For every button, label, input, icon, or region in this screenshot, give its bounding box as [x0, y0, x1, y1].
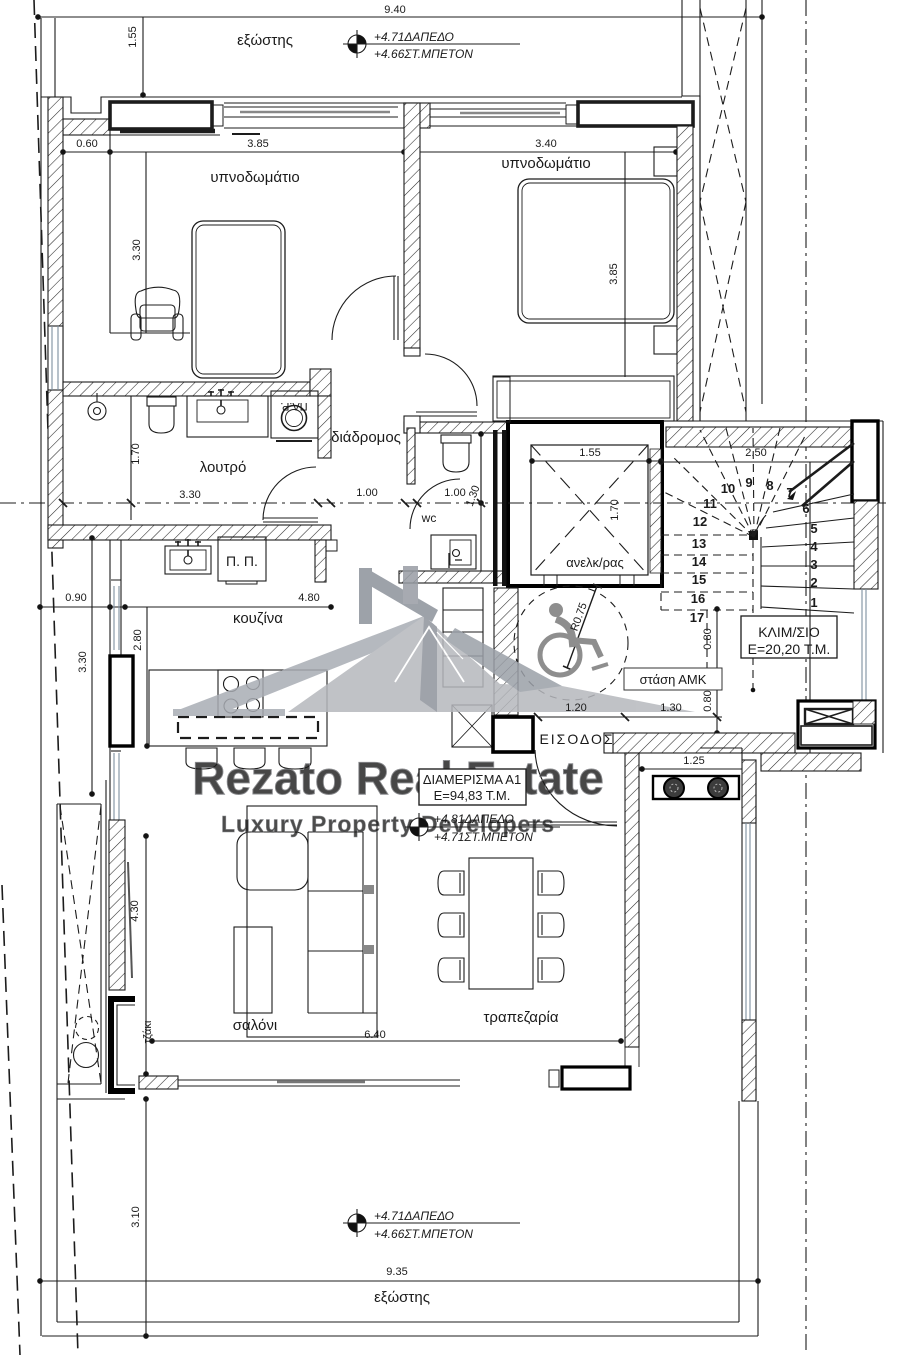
svg-text:τζάκι: τζάκι	[142, 1020, 154, 1043]
svg-text:3.30: 3.30	[131, 239, 143, 260]
svg-text:3.30: 3.30	[77, 651, 89, 672]
svg-text:0.80: 0.80	[702, 628, 714, 649]
svg-text:4.80: 4.80	[298, 592, 319, 604]
svg-text:εξώστης: εξώστης	[374, 1289, 430, 1306]
svg-text:9: 9	[745, 475, 752, 490]
svg-text:ΚΛΙΜ/ΣΙΟ: ΚΛΙΜ/ΣΙΟ	[758, 624, 820, 640]
svg-text:2.80: 2.80	[132, 629, 144, 650]
svg-text:1.25: 1.25	[683, 755, 704, 767]
svg-text:14: 14	[692, 554, 707, 569]
svg-text:υπνοδωμάτιο: υπνοδωμάτιο	[210, 169, 299, 186]
svg-text:+4.71ΣΤ.ΜΠΕΤΟΝ: +4.71ΣΤ.ΜΠΕΤΟΝ	[434, 830, 533, 844]
svg-text:3.85: 3.85	[247, 138, 268, 150]
svg-text:2: 2	[810, 575, 817, 590]
svg-text:1.00: 1.00	[444, 487, 465, 499]
svg-text:7: 7	[786, 485, 793, 500]
svg-text:Ε=20,20 Τ.Μ.: Ε=20,20 Τ.Μ.	[748, 641, 831, 657]
svg-text:1.20: 1.20	[565, 702, 586, 714]
svg-text:13: 13	[692, 536, 706, 551]
svg-text:+4.66ΣΤ.ΜΠΕΤΟΝ: +4.66ΣΤ.ΜΠΕΤΟΝ	[374, 1227, 473, 1241]
svg-text:Rezato Real Estate: Rezato Real Estate	[192, 752, 604, 804]
svg-text:8: 8	[766, 478, 773, 493]
svg-text:5: 5	[810, 521, 817, 536]
svg-text:ΕΙΣΟΔΟΣ: ΕΙΣΟΔΟΣ	[539, 731, 614, 747]
svg-text:4: 4	[810, 539, 818, 554]
svg-text:λουτρό: λουτρό	[200, 459, 247, 476]
svg-text:διάδρομος: διάδρομος	[331, 429, 401, 446]
svg-text:0.80: 0.80	[702, 690, 714, 711]
svg-text:+4.81ΔΑΠΕΔΟ: +4.81ΔΑΠΕΔΟ	[434, 812, 514, 826]
svg-text:εξώστης: εξώστης	[237, 32, 293, 49]
svg-text:Ε=94,83 Τ.Μ.: Ε=94,83 Τ.Μ.	[434, 788, 511, 803]
svg-text:ανελκ/ρας: ανελκ/ρας	[566, 555, 624, 570]
svg-text:ΔΙΑΜΕΡΙΣΜΑ Α1: ΔΙΑΜΕΡΙΣΜΑ Α1	[423, 772, 521, 787]
svg-text:στάση ΑΜΚ: στάση ΑΜΚ	[640, 672, 707, 687]
svg-text:9.35: 9.35	[386, 1266, 407, 1278]
svg-text:12: 12	[693, 514, 707, 529]
svg-text:3.30: 3.30	[179, 489, 200, 501]
svg-text:1.70: 1.70	[609, 499, 621, 520]
svg-text:υπνοδωμάτιο: υπνοδωμάτιο	[501, 155, 590, 172]
svg-text:1.00: 1.00	[356, 487, 377, 499]
svg-text:+4.71ΔΑΠΕΔΟ: +4.71ΔΑΠΕΔΟ	[374, 30, 454, 44]
svg-text:15: 15	[692, 572, 706, 587]
svg-text:17: 17	[690, 610, 704, 625]
svg-text:11: 11	[703, 496, 717, 511]
svg-text:4.30: 4.30	[129, 900, 141, 921]
svg-text:3: 3	[810, 557, 817, 572]
svg-text:9.40: 9.40	[384, 4, 405, 16]
svg-text:1.55: 1.55	[127, 26, 139, 47]
svg-text:κουζίνα: κουζίνα	[233, 610, 283, 627]
svg-text:1.30: 1.30	[660, 702, 681, 714]
svg-text:0.90: 0.90	[65, 592, 86, 604]
svg-text:3.40: 3.40	[535, 138, 556, 150]
svg-text:6.40: 6.40	[364, 1029, 385, 1041]
svg-text:6: 6	[802, 501, 809, 516]
svg-text:10: 10	[721, 481, 735, 496]
svg-text:1: 1	[810, 595, 817, 610]
svg-text:Π. Π.: Π. Π.	[226, 553, 258, 569]
svg-text:2.50: 2.50	[745, 447, 766, 459]
svg-text:1.70: 1.70	[130, 443, 142, 464]
svg-text:0.60: 0.60	[76, 138, 97, 150]
svg-text:+4.71ΔΑΠΕΔΟ: +4.71ΔΑΠΕΔΟ	[374, 1209, 454, 1223]
svg-text:16: 16	[691, 591, 705, 606]
svg-text:3.85: 3.85	[608, 263, 620, 284]
svg-text:1.55: 1.55	[579, 447, 600, 459]
svg-text:τραπεζαρία: τραπεζαρία	[484, 1009, 559, 1026]
svg-text:3.10: 3.10	[130, 1206, 142, 1227]
svg-text:+4.66ΣΤ.ΜΠΕΤΟΝ: +4.66ΣΤ.ΜΠΕΤΟΝ	[374, 47, 473, 61]
svg-text:wc: wc	[421, 511, 437, 525]
svg-text:ΠΛ.Ρ.: ΠΛ.Ρ.	[280, 400, 307, 412]
svg-text:σαλόνι: σαλόνι	[233, 1017, 277, 1034]
